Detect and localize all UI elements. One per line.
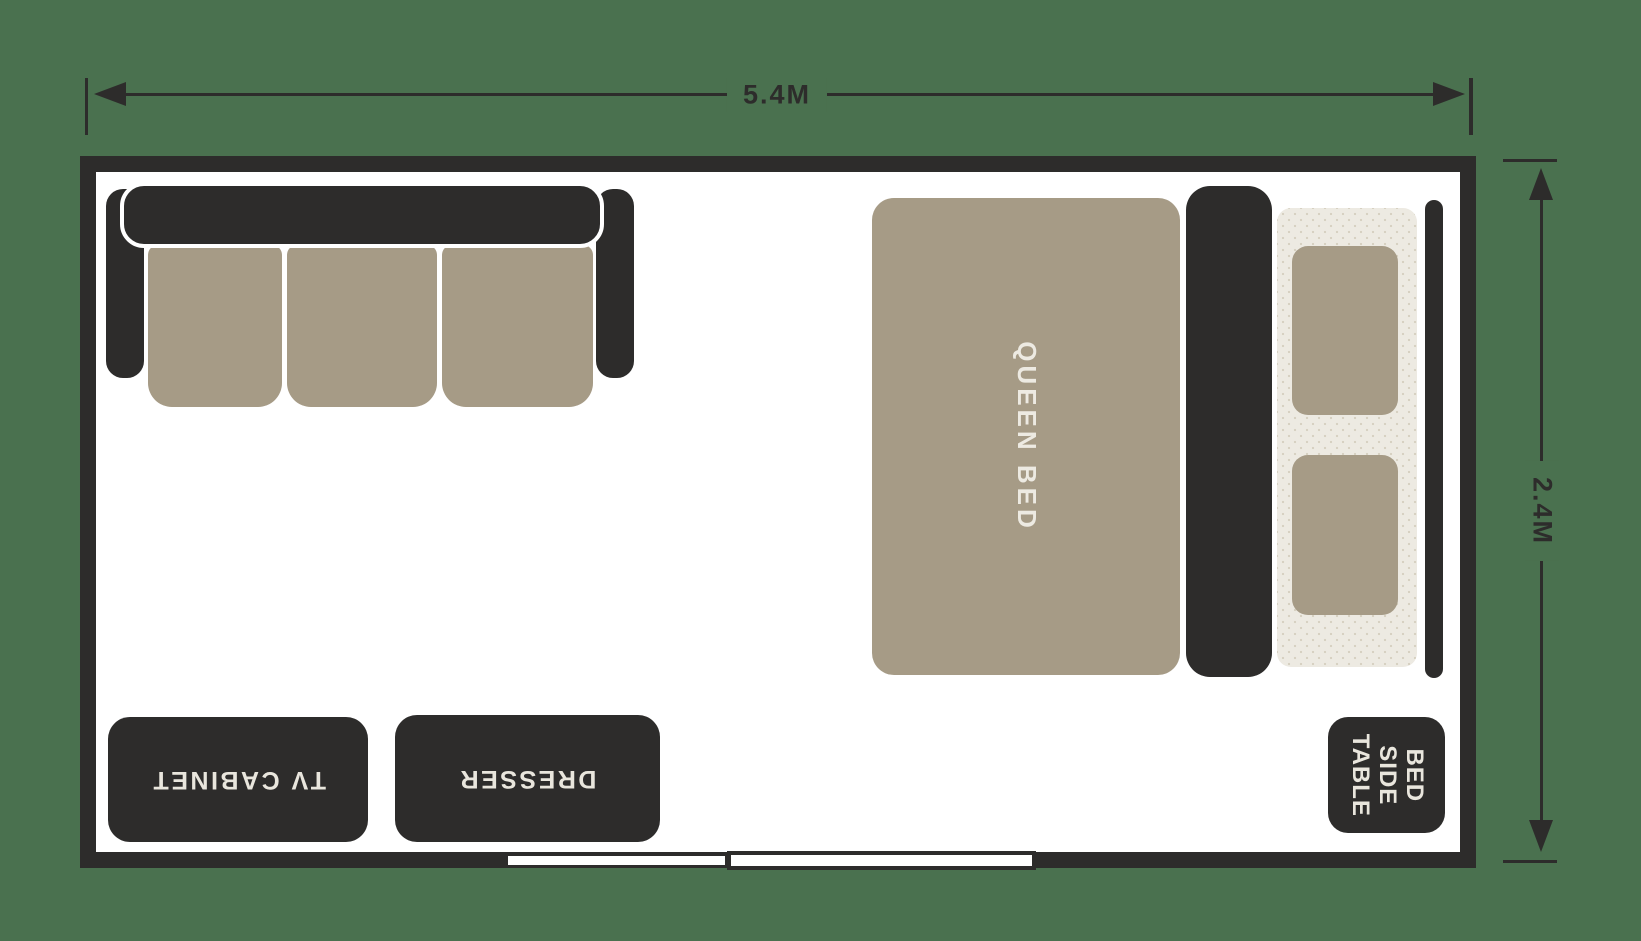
height-dim-arrow-up-icon bbox=[1529, 168, 1553, 200]
queen-bed-label: QUEEN BED bbox=[1010, 341, 1041, 532]
tv-cabinet-label: TV CABINET bbox=[151, 765, 326, 794]
bedside-table-label-line-1: BED bbox=[1400, 733, 1427, 816]
width-dim-label: 5.4M bbox=[727, 78, 827, 113]
width-dim-tick-left bbox=[85, 78, 88, 135]
sofa-cushion-2 bbox=[287, 245, 437, 407]
width-dim-tick-right bbox=[1469, 78, 1473, 135]
height-dim-label: 2.4M bbox=[1525, 461, 1560, 561]
wall-opening-window-left bbox=[505, 853, 728, 868]
bedside-table: BED SIDE TABLE bbox=[1328, 717, 1445, 833]
sofa-cushion-3 bbox=[442, 245, 593, 407]
sofa-backrest bbox=[120, 182, 604, 248]
sofa-cushion-1 bbox=[148, 245, 282, 407]
dresser-label: DRESSER bbox=[458, 764, 596, 793]
queen-bed-pillow-panel bbox=[1277, 208, 1417, 667]
queen-bed-mattress: QUEEN BED bbox=[872, 198, 1180, 675]
width-dim-arrow-left-icon bbox=[94, 82, 126, 106]
bedside-table-label-line-2: SIDE bbox=[1373, 733, 1400, 816]
bedside-table-label-line-3: TABLE bbox=[1346, 733, 1373, 816]
width-dim-arrow-right-icon bbox=[1433, 82, 1465, 106]
height-dim-arrow-down-icon bbox=[1529, 820, 1553, 852]
dresser: DRESSER bbox=[395, 715, 660, 842]
tv-cabinet: TV CABINET bbox=[108, 717, 368, 842]
queen-bed-headboard-bar bbox=[1425, 200, 1443, 678]
queen-bed-footboard-bar bbox=[1186, 186, 1272, 677]
height-dim-tick-top bbox=[1503, 159, 1557, 162]
height-dim-tick-bottom bbox=[1503, 860, 1557, 863]
pillow-1 bbox=[1292, 246, 1398, 415]
pillow-2 bbox=[1292, 455, 1398, 615]
floorplan-canvas: 5.4M 2.4M QUEEN BED TV CABINET DR bbox=[0, 0, 1641, 941]
bedside-table-label: BED SIDE TABLE bbox=[1346, 733, 1427, 816]
wall-opening-window-right bbox=[727, 851, 1036, 870]
